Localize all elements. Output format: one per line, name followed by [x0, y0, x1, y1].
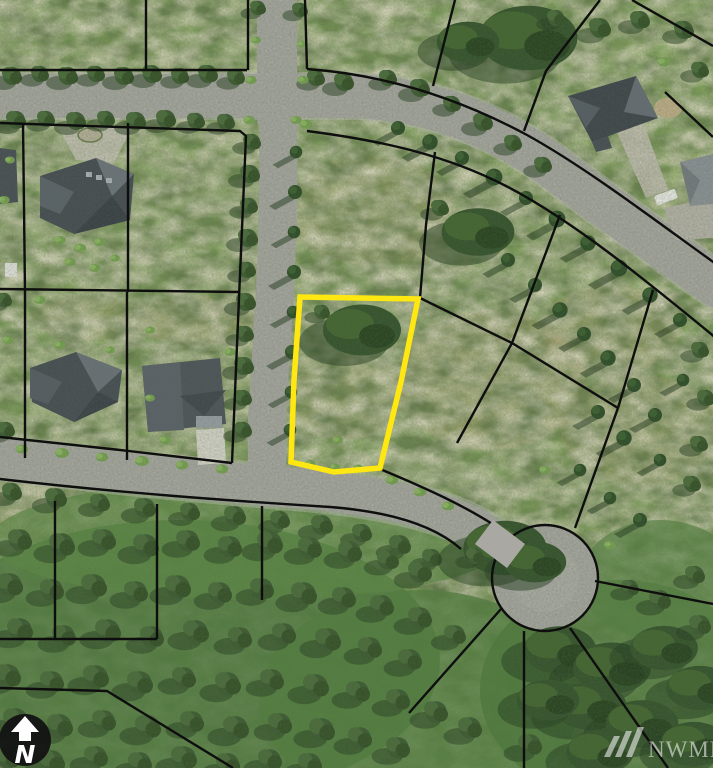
photo-layer [0, 0, 713, 768]
road-entry-gap [484, 532, 516, 556]
watermark-text: NWMLS [648, 737, 713, 762]
north-label: N [15, 740, 36, 768]
aerial-map-page: N NWMLS [0, 0, 713, 768]
aerial-map: N NWMLS [0, 0, 713, 768]
texture-fine [0, 0, 713, 768]
